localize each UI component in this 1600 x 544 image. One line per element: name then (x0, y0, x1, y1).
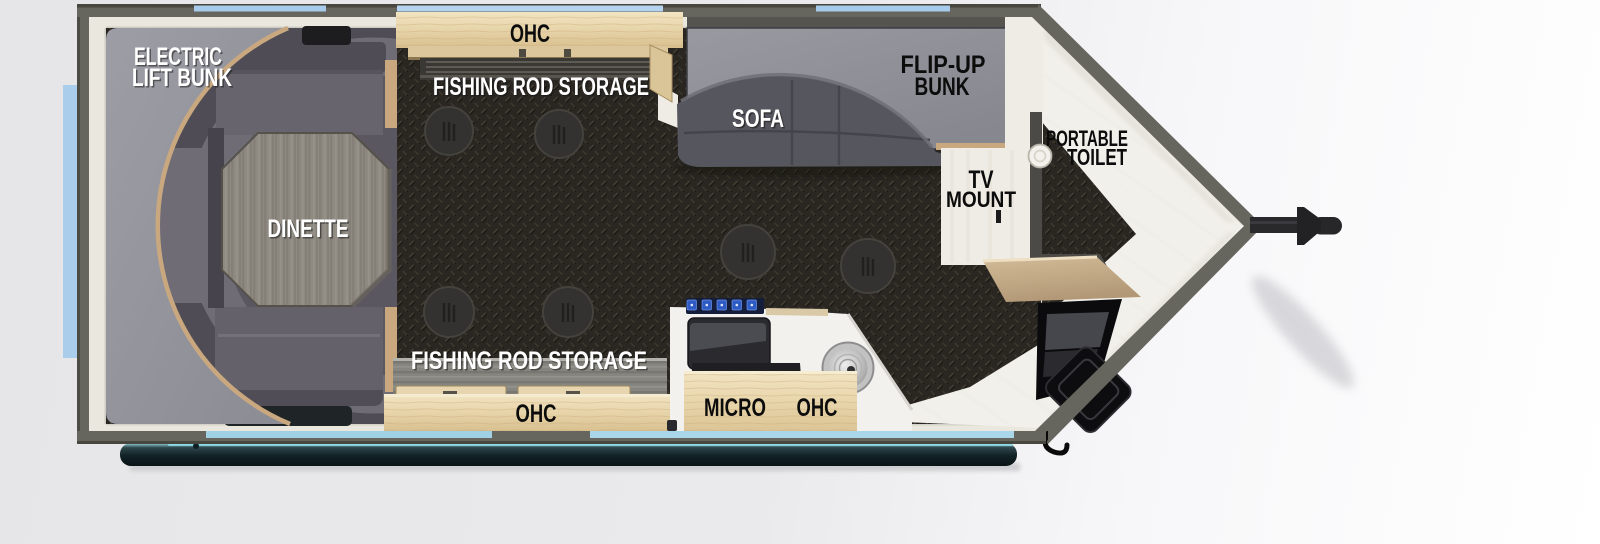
svg-text:MICRO: MICRO (704, 394, 766, 422)
svg-text:SOFA: SOFA (732, 105, 784, 133)
svg-text:OHC: OHC (510, 20, 550, 48)
svg-text:FISHING ROD STORAGE: FISHING ROD STORAGE (433, 73, 649, 101)
svg-text:OHC: OHC (797, 394, 838, 422)
svg-text:MOUNT: MOUNT (946, 187, 1016, 212)
svg-text:LIFT BUNK: LIFT BUNK (132, 64, 232, 92)
svg-text:TOILET: TOILET (1067, 144, 1127, 170)
svg-text:OHC: OHC (516, 400, 557, 428)
svg-text:BUNK: BUNK (915, 73, 970, 101)
svg-text:DINETTE: DINETTE (268, 215, 349, 243)
svg-text:FISHING ROD STORAGE: FISHING ROD STORAGE (411, 347, 647, 375)
